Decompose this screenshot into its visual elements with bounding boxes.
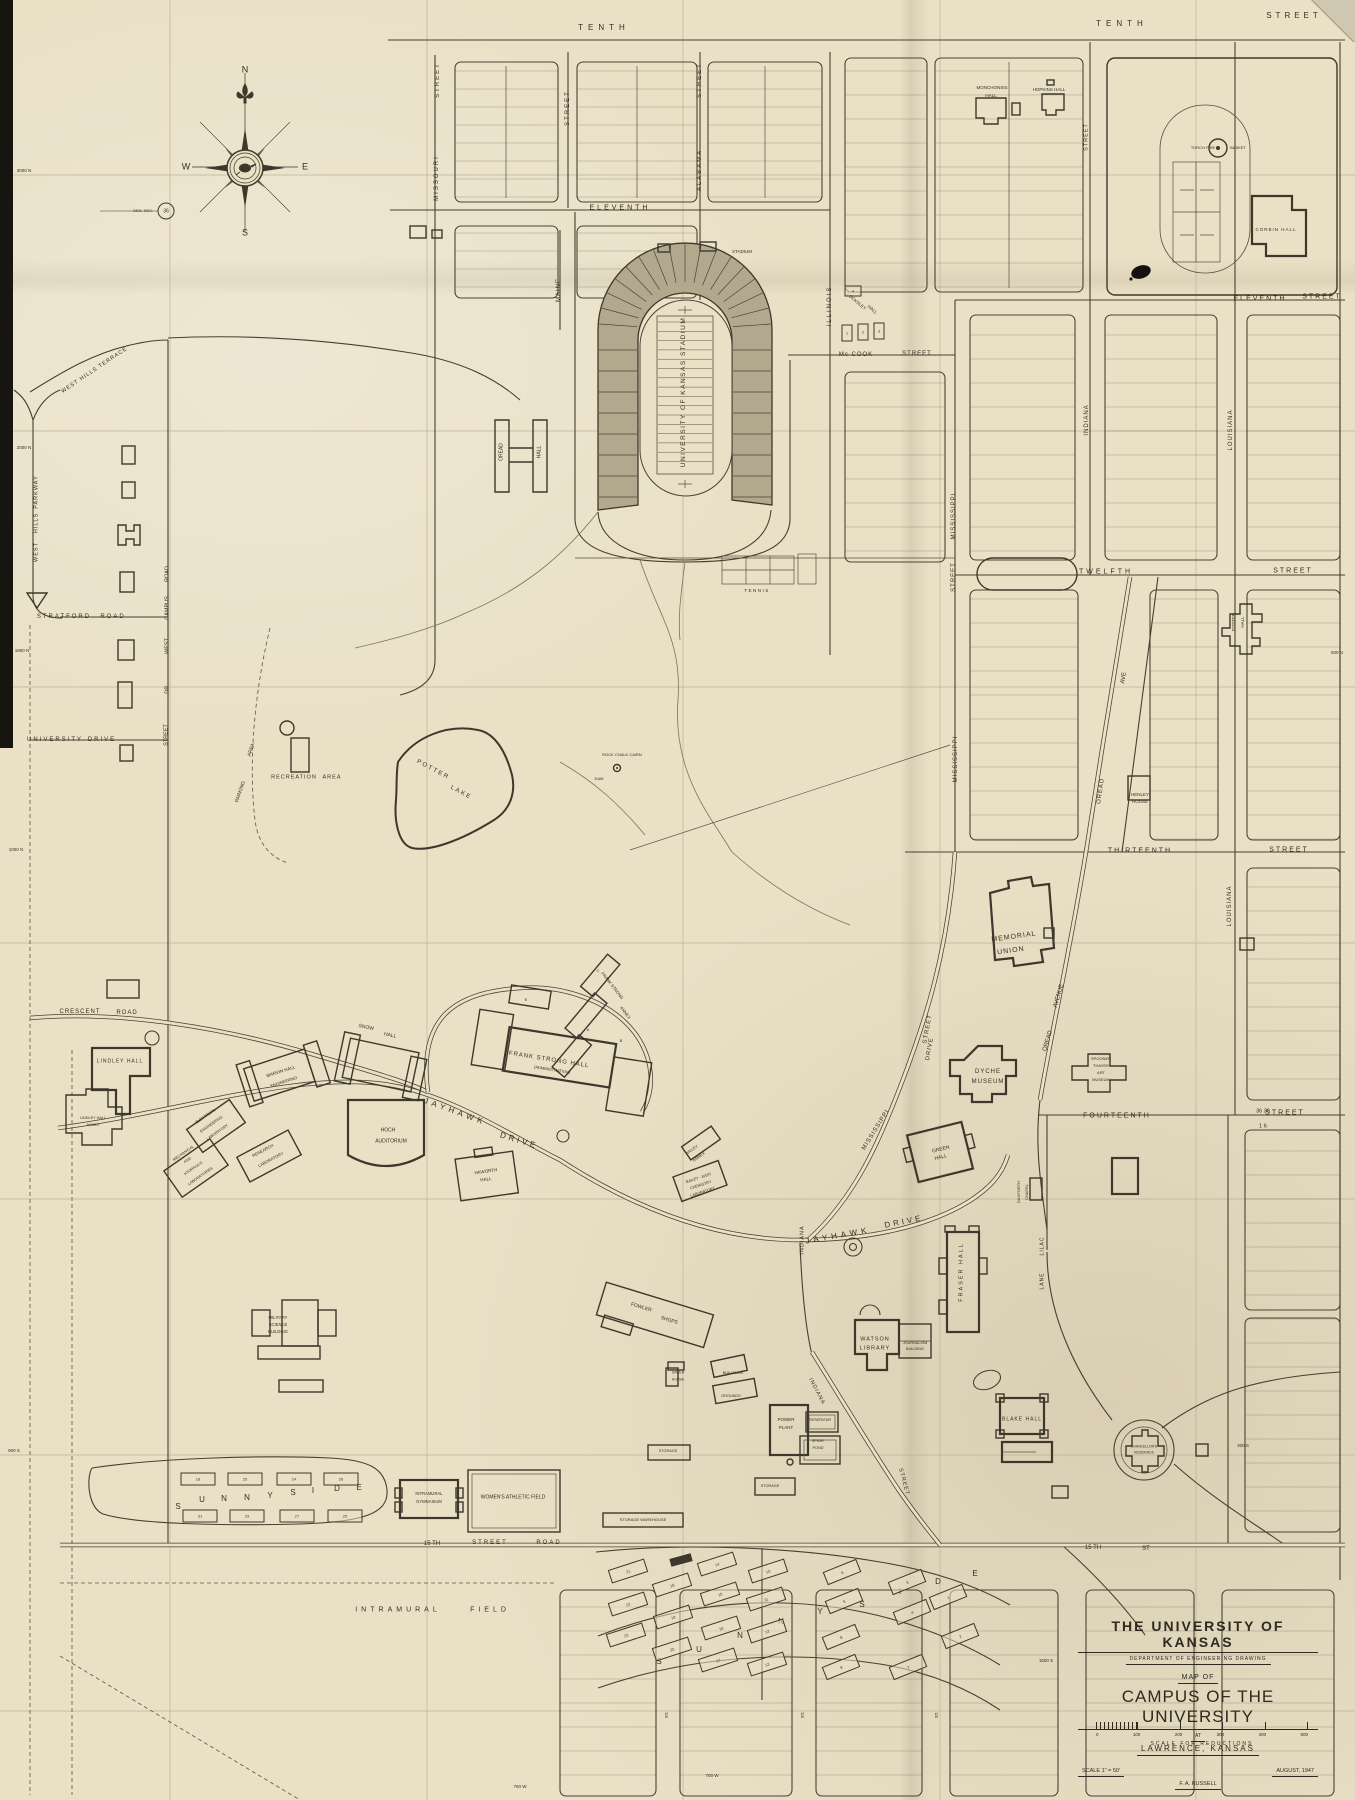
sunnyside-south-east-building: 3 bbox=[888, 1569, 927, 1595]
building-label: DYCHE bbox=[975, 1069, 1001, 1075]
street-label: TENTH bbox=[578, 24, 630, 32]
street-label: LOUISIANA bbox=[1228, 409, 1234, 450]
sunnyside-north-building: 25 bbox=[328, 1510, 363, 1523]
sunnyside-south-west-building: 16 bbox=[701, 1615, 741, 1640]
scale-bar-caption: SCALE FOR REDUCTIONS bbox=[1096, 1741, 1308, 1747]
street-label: CRESCENT bbox=[59, 1009, 100, 1015]
building-label: FRANK STRONG bbox=[600, 972, 624, 1001]
scale-tick: 500 bbox=[1300, 1732, 1308, 1737]
sunnyside-north-building: 27 bbox=[280, 1510, 315, 1523]
building-label: HALL bbox=[985, 94, 996, 99]
street-label: JAYHAWK bbox=[805, 1226, 871, 1245]
street-label: THIRTEENTH bbox=[1108, 848, 1172, 855]
building-label: LIBRARY bbox=[860, 1346, 890, 1352]
building-label: AND bbox=[184, 1157, 193, 1165]
building-label: GROUNDS bbox=[721, 1395, 740, 1399]
building-label: HALL bbox=[934, 1154, 947, 1162]
sunnyside-south-west-building: 10 bbox=[748, 1558, 788, 1583]
compass-label: N bbox=[242, 66, 249, 75]
building-label: CHANCELLOR'S bbox=[1131, 1445, 1157, 1448]
compass-label: GEN. SEC. bbox=[133, 209, 153, 213]
area-label: DAM bbox=[595, 777, 604, 781]
sunnyside-south-west-building: 14 bbox=[697, 1551, 737, 1576]
area-label: INTRAMURAL bbox=[355, 1607, 441, 1614]
sunnyside-south-east-building: 8 bbox=[822, 1624, 861, 1650]
map-author: F. A. RUSSELL bbox=[1175, 1781, 1220, 1790]
street-label: PARKWAY bbox=[34, 475, 40, 509]
street-label: WEST bbox=[34, 542, 40, 562]
building-label: HALL bbox=[866, 305, 878, 316]
map-scale: SCALE 1" = 50' bbox=[1078, 1768, 1124, 1777]
sunnyside_letters-label: U bbox=[199, 1496, 205, 1504]
street-label: DRIVE bbox=[884, 1214, 924, 1229]
street-label: STREET bbox=[1084, 123, 1090, 151]
sunnyside_letters-label: S bbox=[859, 1601, 864, 1609]
edge_mark-label: 36 36 bbox=[1256, 1109, 1270, 1115]
building-label: HALL bbox=[1241, 616, 1246, 627]
street-label: LOUISIANA bbox=[1227, 885, 1233, 926]
sunnyside-south-east-building: 2 bbox=[941, 1623, 980, 1649]
street-label: OREAD bbox=[1096, 778, 1106, 805]
area-label: POTTER bbox=[416, 759, 451, 781]
campus-map-sheet: NESWGEN. SEC.36TENTHTENTHSTREETELEVENTHE… bbox=[0, 0, 1355, 1800]
street-label: STREET bbox=[902, 351, 932, 357]
street-label: STREET bbox=[435, 62, 441, 98]
street-label: STREET bbox=[164, 724, 170, 746]
compass-label: 36 bbox=[163, 210, 169, 215]
sunnyside_letters-label: N bbox=[737, 1632, 743, 1640]
building-label: ENGINEERING bbox=[270, 1076, 298, 1088]
building-label: HOUSE bbox=[672, 1378, 684, 1382]
street-label: MISSOURI bbox=[434, 155, 440, 201]
street-label: MAINE bbox=[556, 278, 562, 302]
sunnyside_letters-label: N bbox=[244, 1494, 250, 1502]
building-label: MUSEUM bbox=[972, 1079, 1005, 1085]
building-label: CHAPEL bbox=[1025, 1184, 1029, 1200]
sunnyside-south-west-building: 11 bbox=[746, 1586, 786, 1611]
building-label: AUDITORIUM bbox=[375, 1140, 407, 1145]
street-label: MISSISSIPPI bbox=[861, 1109, 891, 1152]
street-label: AVE bbox=[1120, 672, 1128, 684]
street-label: ST bbox=[1142, 1546, 1150, 1552]
sunnyside_letters-label: U bbox=[696, 1646, 702, 1654]
sunnyside-south-west-building: 22 bbox=[608, 1591, 648, 1616]
sunnyside-south-east-building: 5 bbox=[825, 1588, 864, 1614]
building-label: RESIDENCE bbox=[1134, 1451, 1154, 1454]
street-label: ALABAMA bbox=[697, 149, 703, 191]
building-label: OREAD bbox=[500, 443, 505, 461]
building-label: GYMNASIUM bbox=[416, 1500, 442, 1504]
building-label: STORAGE bbox=[659, 1450, 678, 1454]
sunnyside_letters-label: S bbox=[175, 1503, 180, 1511]
area-label: AREA bbox=[323, 775, 342, 781]
building-label: ANNEX bbox=[619, 1006, 631, 1020]
street-label: ROAD bbox=[100, 614, 125, 620]
scale-tick: 300 bbox=[1217, 1732, 1225, 1737]
sunnyside-south-west-building: 13 bbox=[747, 1651, 787, 1676]
building-label: BUILDING bbox=[268, 1330, 288, 1334]
building-label: MUSEUM bbox=[1092, 1078, 1110, 1082]
map-title: THE UNIVERSITY OF KANSAS bbox=[1078, 1618, 1318, 1653]
sunnyside-south-west-building: 15 bbox=[700, 1581, 740, 1606]
sunnyside-north-building: 26 bbox=[324, 1473, 359, 1486]
building-label: RESERVOIR bbox=[809, 1419, 831, 1423]
street-label: Mc COOK bbox=[839, 352, 873, 358]
scale-tick: 400 bbox=[1259, 1732, 1267, 1737]
edge_mark-label: 3000 N bbox=[17, 169, 32, 174]
area-label: RECREATION bbox=[271, 775, 317, 781]
building-label: HOUSE bbox=[1132, 800, 1148, 805]
building-label: THAYER bbox=[1093, 1064, 1109, 1068]
street-label: STREET bbox=[1302, 294, 1342, 301]
street-label: CAMPUS bbox=[165, 596, 171, 620]
sunnyside_letters-label: S bbox=[290, 1489, 295, 1497]
marker-label: B bbox=[620, 1039, 623, 1043]
street-label: LILAC bbox=[1041, 1237, 1046, 1256]
building-label: MILITARY bbox=[269, 1316, 288, 1320]
street-label: AVENUE bbox=[1053, 984, 1065, 1009]
compass-label: E bbox=[302, 163, 308, 172]
locksley-hall-building: 3 bbox=[874, 323, 885, 340]
sunnyside-south-west-building: 17 bbox=[698, 1647, 738, 1672]
edge_mark-label: 300 S bbox=[1237, 1444, 1249, 1449]
street-label: STREET bbox=[1269, 847, 1309, 854]
street-label: STREET bbox=[1273, 568, 1313, 575]
street-label: STREET bbox=[1266, 12, 1322, 20]
scale-tick: 0 bbox=[1096, 1732, 1099, 1737]
building-label: MONCHONSIS bbox=[976, 86, 1007, 91]
building-label: ANNEX bbox=[692, 1151, 706, 1162]
edge_mark-label: 1800 N bbox=[15, 649, 30, 654]
area-label: BASKET bbox=[1230, 146, 1246, 150]
building-label: BUILDINGS bbox=[723, 1372, 743, 1376]
street-label: ST. bbox=[801, 1712, 806, 1719]
street-label: ST. bbox=[935, 1712, 940, 1719]
building-label: FOSTER bbox=[1232, 613, 1237, 631]
street-label: TWELFTH bbox=[1079, 569, 1133, 576]
sunnyside-south-west-building: 21 bbox=[608, 1558, 648, 1583]
area-label: LAKE bbox=[449, 785, 472, 801]
street-label: DRIVE bbox=[499, 1131, 539, 1150]
sunnyside-south-west-building: 12 bbox=[747, 1618, 787, 1643]
sunnyside_letters-label: Y bbox=[267, 1492, 272, 1500]
street-label: UNIVERSITY bbox=[27, 737, 83, 743]
sunnyside-south-west-building: 18 bbox=[652, 1572, 692, 1597]
sunnyside_letters-label: Y bbox=[817, 1608, 822, 1616]
building-label: ART bbox=[1097, 1071, 1105, 1075]
building-label: LINDLEY HALL bbox=[97, 1060, 144, 1065]
street-label: ROAD bbox=[116, 1010, 137, 1016]
locksley-hall-building: 2 bbox=[858, 324, 869, 341]
street-label: OREAD bbox=[1042, 1030, 1054, 1052]
sunnyside_letters-label: D bbox=[935, 1578, 941, 1586]
sunnyside_letters-label: E bbox=[972, 1570, 977, 1578]
building-label: POND bbox=[813, 1447, 824, 1451]
building-label: GREEN bbox=[672, 1371, 684, 1375]
street-label: TENTH bbox=[1096, 20, 1148, 28]
sunnyside_letters-label: D bbox=[334, 1485, 340, 1493]
building-label: FOWLER bbox=[630, 1302, 652, 1313]
scale-bar-line bbox=[1096, 1722, 1308, 1730]
street-label: FOURTEENTH bbox=[1083, 1113, 1151, 1120]
sunnyside-south-west-building: 19 bbox=[653, 1604, 693, 1629]
building-label: HALL bbox=[538, 446, 543, 459]
map-department: DEPARTMENT OF ENGINEERING DRAWING bbox=[1126, 1656, 1271, 1665]
building-label: STORAGE WAREHOUSE bbox=[620, 1518, 667, 1522]
building-label: HALL bbox=[480, 1177, 492, 1183]
marker-label: A bbox=[587, 1028, 590, 1032]
building-label: SCIENCE bbox=[269, 1323, 288, 1327]
area-label: STADIUM bbox=[732, 250, 752, 255]
map-of-label: MAP OF bbox=[1178, 1674, 1219, 1684]
sunnyside-south-east-building: 4 bbox=[893, 1599, 932, 1625]
edge_mark-label: 2000 N bbox=[17, 446, 32, 451]
building-label: SNOW bbox=[358, 1024, 374, 1032]
sunnyside-south-west-building: 23 bbox=[606, 1622, 646, 1647]
street-label: STREET bbox=[951, 562, 957, 592]
edge_mark-label: 1 6 bbox=[1259, 1124, 1267, 1130]
edge_mark-label: 500 N bbox=[1331, 651, 1343, 656]
sunnyside-north-building: 25 bbox=[228, 1473, 263, 1486]
street-label: WEST bbox=[165, 638, 171, 654]
building-label: UNION bbox=[997, 946, 1025, 957]
sunnyside-south-east-building: 9 bbox=[822, 1654, 861, 1680]
edge_mark-label: 1500 S bbox=[1039, 1659, 1053, 1664]
building-label: DANFORTH bbox=[1017, 1181, 1021, 1203]
street-label: STREET bbox=[897, 1468, 909, 1496]
building-label: MEMORIAL bbox=[991, 930, 1037, 943]
marker-label: C bbox=[597, 969, 600, 973]
locksley-hall-building: 4 bbox=[845, 286, 862, 297]
scale-bar-ticks: 0100200300400500 bbox=[1096, 1732, 1308, 1737]
building-label: CORBIN HALL bbox=[1255, 228, 1296, 233]
edge_mark-label: 750 W bbox=[513, 1785, 526, 1790]
street-label: MISSISSIPPI bbox=[951, 493, 957, 540]
building-label: SHOPS bbox=[660, 1316, 678, 1326]
building-label: LINDLEY HALL bbox=[80, 1117, 106, 1121]
building-label: POWER bbox=[777, 1418, 794, 1423]
street-label: STRATFORD bbox=[37, 614, 91, 620]
street-label: JAYHAWK bbox=[423, 1097, 488, 1127]
area-label: ROCK CHALK CAIRN bbox=[602, 753, 642, 757]
scale-tick: 100 bbox=[1133, 1732, 1141, 1737]
title-block: THE UNIVERSITY OF KANSAS DEPARTMENT OF E… bbox=[1078, 1618, 1318, 1790]
sunnyside-north-building: 24 bbox=[277, 1473, 312, 1486]
area-label: TENNIS bbox=[744, 589, 770, 594]
area-label: PARKING bbox=[235, 781, 247, 804]
street-label: ROAD bbox=[165, 566, 171, 582]
building-label: HENLEY bbox=[1131, 793, 1149, 798]
street-label: WEST HILLS TERRACE bbox=[61, 347, 129, 395]
map-labels: NESWGEN. SEC.36TENTHTENTHSTREETELEVENTHE… bbox=[0, 0, 1355, 1800]
street-label: HILLS bbox=[34, 513, 40, 533]
building-label: HOPKINS HALL bbox=[1033, 88, 1066, 93]
street-label: DR. bbox=[165, 684, 171, 693]
edge_mark-label: 700 W bbox=[705, 1774, 718, 1779]
street-label: DRIVE bbox=[88, 737, 116, 743]
sunnyside-south-east-building: 7 bbox=[889, 1654, 928, 1680]
locksley-hall-building: 1 bbox=[842, 325, 853, 342]
compass-label: S bbox=[242, 229, 248, 238]
area-label: UNIVERSITY OF KANSAS STADIUM bbox=[681, 317, 688, 467]
street-label: ELEVENTH bbox=[1234, 296, 1287, 303]
street-label: ELEVENTH bbox=[590, 205, 651, 212]
area-label: AREA bbox=[248, 743, 257, 758]
edge_mark-label: 1000 N bbox=[9, 848, 24, 853]
compass-label: W bbox=[182, 163, 191, 172]
sunnyside-south-west-building: 20 bbox=[652, 1636, 692, 1661]
street-label: MISSISSIPPI bbox=[953, 736, 959, 783]
sunnyside_letters-label: N bbox=[221, 1495, 227, 1503]
building-label: FRASER HALL bbox=[959, 1242, 965, 1302]
sunnyside-north-building: 29 bbox=[230, 1510, 265, 1523]
edge_mark-label: 900 S bbox=[8, 1449, 20, 1454]
building-label: (ADMINISTRATION) bbox=[534, 1065, 571, 1075]
street-label: ST. bbox=[665, 1712, 670, 1719]
sunnyside_letters-label: I bbox=[312, 1487, 314, 1495]
building-label: BLAKE HALL bbox=[1002, 1418, 1042, 1423]
street-label: STREET bbox=[1265, 1110, 1305, 1117]
street-label: LANE bbox=[1041, 1272, 1046, 1289]
street-label: 15 TH bbox=[424, 1541, 440, 1547]
building-label: SPRAY bbox=[812, 1440, 825, 1444]
building-label: SPOONER bbox=[1091, 1057, 1111, 1061]
building-label: JOURNALISM bbox=[903, 1342, 927, 1346]
building-label: HOCH bbox=[381, 1129, 396, 1134]
map-date: AUGUST, 1947 bbox=[1272, 1768, 1318, 1777]
street-label: 15 TH bbox=[1085, 1545, 1101, 1551]
street-label: ILLINOIS bbox=[827, 286, 833, 327]
sunnyside-north-building: 31 bbox=[183, 1510, 218, 1523]
building-label: PLANT bbox=[779, 1426, 794, 1431]
building-label: INTRAMURAL bbox=[415, 1492, 442, 1496]
sunnyside-north-building: 18 bbox=[181, 1473, 216, 1486]
building-label: STORAGE bbox=[761, 1485, 780, 1489]
area-label: WOMEN'S ATHLETIC FIELD bbox=[481, 1496, 545, 1501]
sunnyside-south-east-building: 6 bbox=[823, 1559, 862, 1585]
marker-label: E bbox=[525, 998, 528, 1002]
area-label: TORCH FIRE bbox=[1191, 146, 1215, 150]
street-label: STREET bbox=[565, 90, 571, 126]
street-label: INDIANA bbox=[807, 1378, 826, 1406]
sunnyside-south-east-building: 1 bbox=[929, 1584, 968, 1610]
building-label: ANNEX bbox=[86, 1124, 99, 1128]
building-label: BUILDING bbox=[906, 1348, 924, 1352]
scale-bar: 0100200300400500 SCALE FOR REDUCTIONS bbox=[1096, 1722, 1308, 1747]
building-label: WATSON bbox=[860, 1337, 890, 1343]
building-label: HAWORTH bbox=[474, 1168, 497, 1176]
street-label: STREET bbox=[472, 1540, 508, 1546]
area-label: FIELD bbox=[470, 1607, 510, 1614]
street-label: STREET bbox=[697, 62, 703, 98]
building-label: HALL bbox=[383, 1032, 396, 1039]
scale-tick: 200 bbox=[1175, 1732, 1183, 1737]
street-label: INDIANA bbox=[1084, 404, 1090, 435]
street-label: ROAD bbox=[536, 1540, 561, 1546]
